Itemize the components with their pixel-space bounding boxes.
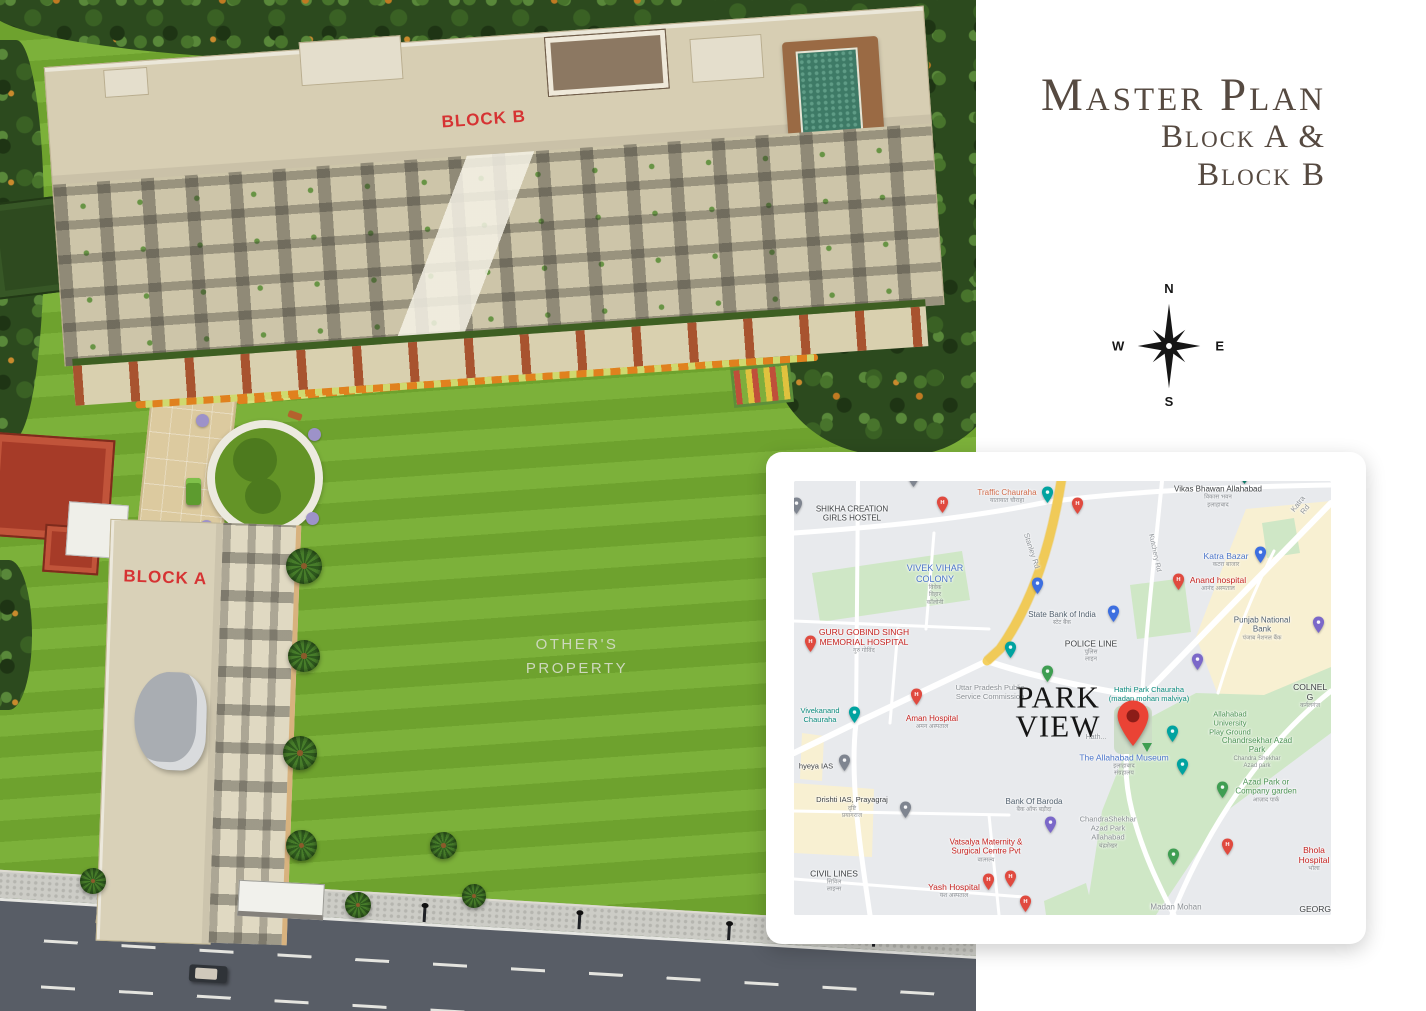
map-pin-icon: [1107, 605, 1120, 628]
map-label: Azad Park or Company gardenआज़ाद पार्क: [1235, 777, 1296, 804]
block-a-roof: BLOCK A: [96, 519, 226, 945]
compass-south-label: S: [1165, 394, 1174, 409]
map-label: CIVIL LINESसिविल लाइन्स: [810, 868, 858, 893]
map-pin-icon: [899, 801, 912, 824]
map-label: The Allahabad Museumइलाहाबाद संग्रहालय: [1079, 752, 1168, 777]
map-label: GEORGE: [1299, 904, 1331, 914]
shrub: [308, 428, 321, 441]
master-plan-page: BLOCK B BLOCK A: [0, 0, 1426, 1011]
title-block-b: Block B: [976, 157, 1326, 195]
svg-text:H: H: [940, 500, 944, 506]
map-pin-icon: [1191, 653, 1204, 676]
title-master-plan: Master Plan: [976, 72, 1326, 119]
page-title: Master Plan Block A & Block B: [976, 72, 1426, 195]
map-pin-icon: [1031, 577, 1044, 600]
map-pin-icon: H: [1172, 573, 1185, 596]
map-pin-icon: [848, 706, 861, 729]
park-marker-icon: [1142, 743, 1152, 752]
map-pin-icon: H: [804, 635, 817, 658]
map-pin-icon: [1216, 781, 1229, 804]
map-pin-icon: H: [1071, 497, 1084, 520]
map-pin-icon: H: [1221, 838, 1234, 861]
location-map-card: SHIKHA CREATION GIRLS HOSTELTraffic Chau…: [766, 452, 1366, 944]
map-pin-icon: H: [936, 496, 949, 519]
bench: [287, 410, 303, 421]
roof-sculpture: [133, 671, 208, 771]
park-view-label: PARK VIEW: [1016, 683, 1101, 742]
map-label: COLNEL Gकर्नलगंज: [1293, 682, 1327, 710]
map-label: Allahabad University Play Ground: [1209, 711, 1251, 738]
svg-text:H: H: [1225, 842, 1229, 848]
map-label: Yash Hospitalयश अस्पताल: [928, 882, 980, 900]
map-label: Anand hospitalआनंद अस्पताल: [1190, 575, 1246, 593]
map-label: Uttar Pradesh Public Service Commission: [956, 684, 1025, 702]
map-label: Vivekanand Chauraha: [800, 707, 839, 725]
svg-text:H: H: [986, 877, 990, 883]
map-label: hyeya IAS: [799, 763, 833, 772]
parked-car: [186, 478, 201, 505]
compass-star-icon: [1123, 300, 1215, 392]
svg-text:H: H: [1075, 501, 1079, 507]
map-pin-icon: [1176, 758, 1189, 781]
map-pin-icon: H: [1004, 870, 1017, 893]
map-pin-icon: [907, 481, 920, 493]
map-pin-icon: [1312, 616, 1325, 639]
map-pin-icon: H: [910, 688, 923, 711]
compass-east-label: E: [1215, 339, 1224, 354]
map-label: ChandraShekhar Azad Park Allahabadचंद्रश…: [1080, 816, 1137, 851]
map-label: Traffic Chaurahaयातायात चौराहा: [977, 488, 1036, 506]
red-location-pin-icon: [1115, 699, 1151, 749]
map-label: VIVEK VIHAR COLONYविवेक विहार कॉलोनी: [907, 563, 964, 607]
block-b-building: BLOCK B: [44, 6, 946, 419]
svg-text:H: H: [1023, 899, 1027, 905]
svg-text:H: H: [914, 692, 918, 698]
map-label: Aman Hospitalअमन अस्पताल: [906, 714, 958, 732]
map-label: Katra Bazarकटरा बाजार: [1204, 551, 1249, 569]
map-label: GURU GOBIND SINGH MEMORIAL HOSPITALगुरु …: [819, 627, 909, 655]
shrub: [306, 512, 319, 525]
compass-rose: N S E W: [1108, 285, 1230, 407]
map-label: Bank Of Barodaबैंक ऑफ बड़ौदा: [1006, 797, 1063, 815]
others-property-label: OTHER'S PROPERTY: [526, 633, 628, 681]
map-pin-icon: [1166, 725, 1179, 748]
map-label: Bhola Hospitalभोला: [1299, 845, 1330, 873]
map-label: Punjab National Bankपंजाब नेशनल बैंक: [1228, 615, 1297, 642]
map-pin-icon: [1004, 641, 1017, 664]
map-pin-icon: [838, 754, 851, 777]
map-label: Madan Mohan: [1150, 902, 1201, 911]
play-area: [733, 365, 790, 404]
compass-north-label: N: [1164, 281, 1173, 296]
neighbour-house-red-roof: [0, 432, 115, 544]
block-a-label: BLOCK A: [123, 566, 207, 589]
map-pin-icon: [794, 497, 803, 520]
google-map: SHIKHA CREATION GIRLS HOSTELTraffic Chau…: [794, 481, 1331, 915]
map-pin-icon: H: [982, 873, 995, 896]
svg-text:H: H: [1008, 874, 1012, 880]
entrance-gate: [237, 880, 325, 920]
map-pin-icon: [1254, 546, 1267, 569]
map-label: Drishti IAS, Prayagrajदृष्टि प्रयागराज: [816, 796, 888, 820]
map-label: POLICE LINEपुलिस लाइन: [1065, 638, 1117, 663]
car: [189, 964, 228, 983]
title-block-a: Block A &: [976, 119, 1326, 157]
svg-text:H: H: [808, 639, 812, 645]
map-pin-icon: [1167, 848, 1180, 871]
svg-text:H: H: [1176, 577, 1180, 583]
map-label: SHIKHA CREATION GIRLS HOSTEL: [816, 505, 888, 524]
map-pin-icon: H: [1019, 895, 1032, 915]
map-label: Vatsalya Maternity & Surgical Centre Pvt…: [950, 837, 1023, 864]
map-pin-icon: [1044, 816, 1057, 839]
block-b-label: BLOCK B: [441, 107, 527, 133]
map-label: State Bank of Indiaस्टेट बैंक: [1028, 610, 1096, 628]
map-label: Chandrsekhar Azad ParkChandra Shekhar Az…: [1220, 736, 1294, 770]
tree-blob-left-lower: [0, 560, 32, 710]
shrub: [196, 414, 209, 427]
map-pin-icon: [1041, 486, 1054, 509]
map-pin-icon: [1238, 481, 1251, 490]
